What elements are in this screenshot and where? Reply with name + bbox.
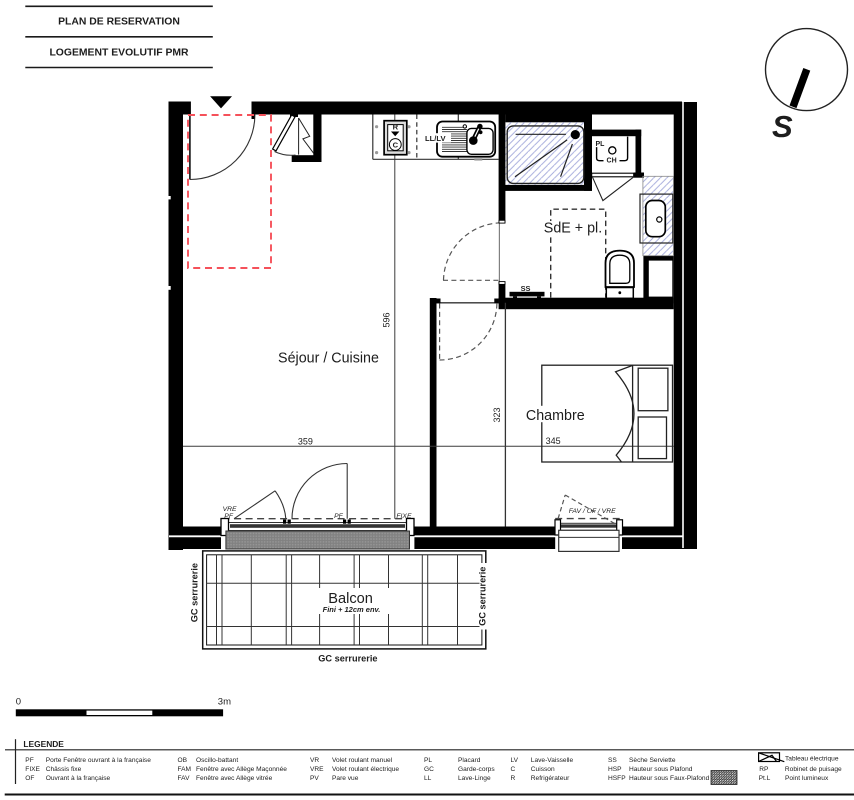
svg-text:LL/LV: LL/LV bbox=[425, 134, 446, 143]
svg-text:Hauteur sous Plafond: Hauteur sous Plafond bbox=[629, 766, 693, 773]
svg-text:R: R bbox=[511, 775, 516, 782]
svg-text:0: 0 bbox=[16, 697, 21, 708]
svg-text:GC serrurerie: GC serrurerie bbox=[477, 567, 487, 626]
svg-text:HSP: HSP bbox=[608, 766, 622, 773]
svg-text:Châssis fixe: Châssis fixe bbox=[46, 766, 82, 773]
svg-text:PF: PF bbox=[334, 513, 344, 520]
svg-text:GC serrurerie: GC serrurerie bbox=[318, 653, 377, 663]
svg-text:SS: SS bbox=[521, 284, 531, 293]
svg-text:LV: LV bbox=[511, 757, 519, 764]
svg-text:Refrigérateur: Refrigérateur bbox=[531, 775, 570, 782]
svg-text:CH: CH bbox=[607, 157, 617, 164]
svg-text:PLAN DE RESERVATION: PLAN DE RESERVATION bbox=[58, 17, 180, 28]
svg-text:VRE: VRE bbox=[310, 766, 324, 773]
svg-text:SS: SS bbox=[608, 757, 617, 764]
svg-text:Chambre: Chambre bbox=[526, 408, 585, 424]
svg-text:VR: VR bbox=[310, 757, 319, 764]
svg-text:Fenêtre avec Allège vitrée: Fenêtre avec Allège vitrée bbox=[196, 775, 273, 782]
svg-text:PL: PL bbox=[424, 757, 432, 764]
svg-text:FIXE: FIXE bbox=[396, 513, 412, 520]
svg-text:Lave-Vaisselle: Lave-Vaisselle bbox=[531, 757, 574, 764]
svg-text:596: 596 bbox=[382, 312, 392, 327]
svg-text:3m: 3m bbox=[218, 697, 231, 708]
svg-text:Volet roulant manuel: Volet roulant manuel bbox=[332, 757, 393, 764]
svg-text:RP: RP bbox=[759, 766, 769, 773]
svg-text:FIXE: FIXE bbox=[25, 766, 40, 773]
svg-text:Cuisson: Cuisson bbox=[531, 766, 555, 773]
svg-text:OF: OF bbox=[25, 775, 34, 782]
svg-text:HSFP: HSFP bbox=[608, 775, 626, 782]
svg-text:FAV / OF / VRE: FAV / OF / VRE bbox=[569, 508, 616, 515]
svg-text:345: 345 bbox=[546, 436, 561, 446]
svg-text:Robinet de puisage: Robinet de puisage bbox=[785, 766, 842, 773]
svg-text:Placard: Placard bbox=[458, 757, 481, 764]
svg-text:C: C bbox=[393, 140, 399, 149]
svg-text:LEGENDE: LEGENDE bbox=[23, 739, 64, 749]
svg-text:359: 359 bbox=[298, 437, 313, 447]
svg-text:323: 323 bbox=[492, 407, 502, 422]
svg-text:Pt.L: Pt.L bbox=[759, 775, 771, 782]
svg-text:S: S bbox=[772, 109, 793, 144]
svg-text:Hauteur sous Faux-Plafond: Hauteur sous Faux-Plafond bbox=[629, 775, 710, 782]
svg-text:PF: PF bbox=[25, 757, 33, 764]
svg-text:SdE + pl.: SdE + pl. bbox=[544, 221, 602, 237]
svg-text:Garde-corps: Garde-corps bbox=[458, 766, 495, 773]
svg-text:PV: PV bbox=[310, 775, 319, 782]
svg-text:Tableau électrique: Tableau électrique bbox=[785, 756, 839, 763]
svg-text:GC serrurerie: GC serrurerie bbox=[189, 563, 199, 622]
svg-text:Séjour / Cuisine: Séjour / Cuisine bbox=[278, 351, 379, 367]
svg-text:FAV: FAV bbox=[178, 775, 191, 782]
svg-text:Pare vue: Pare vue bbox=[332, 775, 359, 782]
svg-text:VRE: VRE bbox=[223, 506, 237, 513]
svg-text:LL: LL bbox=[424, 775, 432, 782]
svg-text:Point lumineux: Point lumineux bbox=[785, 775, 829, 782]
svg-text:LOGEMENT EVOLUTIF PMR: LOGEMENT EVOLUTIF PMR bbox=[49, 48, 189, 59]
svg-text:R: R bbox=[393, 123, 399, 132]
svg-text:Oscillo-battant: Oscillo-battant bbox=[196, 757, 238, 764]
svg-text:PF: PF bbox=[224, 513, 234, 520]
svg-text:Lave-Linge: Lave-Linge bbox=[458, 775, 491, 782]
svg-text:Ouvrant à la française: Ouvrant à la française bbox=[46, 775, 111, 782]
svg-text:Fenêtre avec Allège Maçonnée: Fenêtre avec Allège Maçonnée bbox=[196, 766, 287, 773]
svg-text:Volet roulant électrique: Volet roulant électrique bbox=[332, 766, 399, 773]
svg-text:Fini + 12cm env.: Fini + 12cm env. bbox=[323, 605, 381, 614]
svg-text:OB: OB bbox=[178, 757, 188, 764]
svg-text:C: C bbox=[511, 766, 516, 773]
svg-text:GC: GC bbox=[424, 766, 434, 773]
svg-text:Porte Fenêtre ouvrant à la fra: Porte Fenêtre ouvrant à la française bbox=[46, 757, 152, 764]
svg-text:FAM: FAM bbox=[178, 766, 192, 773]
svg-text:Sèche Serviette: Sèche Serviette bbox=[629, 757, 676, 764]
svg-text:PL: PL bbox=[596, 141, 606, 148]
